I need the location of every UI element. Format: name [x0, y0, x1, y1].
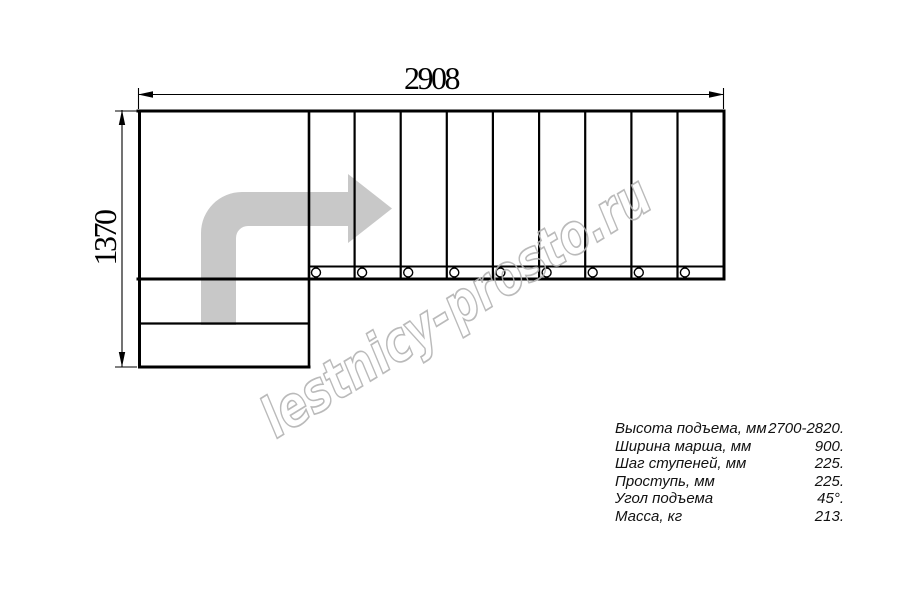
- dim-arrowhead-bottom: [119, 352, 125, 367]
- dim-arrowhead-left: [138, 91, 153, 98]
- spec-table: Высота подъема, мм 2700-2820. Ширина мар…: [615, 420, 844, 525]
- spec-row: Ширина марша, мм 900.: [615, 438, 844, 456]
- spec-row: Высота подъема, мм 2700-2820.: [615, 420, 844, 438]
- spec-value: 45°.: [817, 490, 844, 508]
- spec-row: Масса, кг 213.: [615, 508, 844, 526]
- tread-circle: [404, 268, 413, 277]
- height-dimension-label: 1370: [87, 210, 123, 266]
- spec-label: Высота подъема, мм: [615, 420, 767, 438]
- tread-circle: [634, 268, 643, 277]
- tread-circle: [588, 268, 597, 277]
- tread-circle: [358, 268, 367, 277]
- spec-value: 225.: [815, 455, 844, 473]
- spec-row: Проступь, мм 225.: [615, 473, 844, 491]
- spec-label: Проступь, мм: [615, 473, 715, 491]
- spec-value: 2700-2820.: [768, 420, 844, 438]
- spec-value: 900.: [815, 438, 844, 456]
- width-dimension-label: 2908: [404, 60, 460, 96]
- spec-label: Ширина марша, мм: [615, 438, 751, 456]
- spec-row: Угол подъема 45°.: [615, 490, 844, 508]
- staircase-plan-page: 2908 1370 lestnicy-prosto.ru Высота подъ…: [0, 0, 900, 600]
- spec-value: 225.: [815, 473, 844, 491]
- spec-value: 213.: [815, 508, 844, 526]
- direction-arrow-icon: [201, 174, 392, 325]
- tread-circle: [312, 268, 321, 277]
- width-dimension: 2908: [138, 60, 724, 109]
- height-dimension: 1370: [87, 110, 137, 367]
- spec-row: Шаг ступеней, мм 225.: [615, 455, 844, 473]
- dim-arrowhead-top: [119, 110, 125, 125]
- spec-label: Угол подъема: [615, 490, 713, 508]
- tread-circle: [680, 268, 689, 277]
- spec-label: Шаг ступеней, мм: [615, 455, 746, 473]
- dim-arrowhead-right: [709, 91, 724, 98]
- spec-label: Масса, кг: [615, 508, 682, 526]
